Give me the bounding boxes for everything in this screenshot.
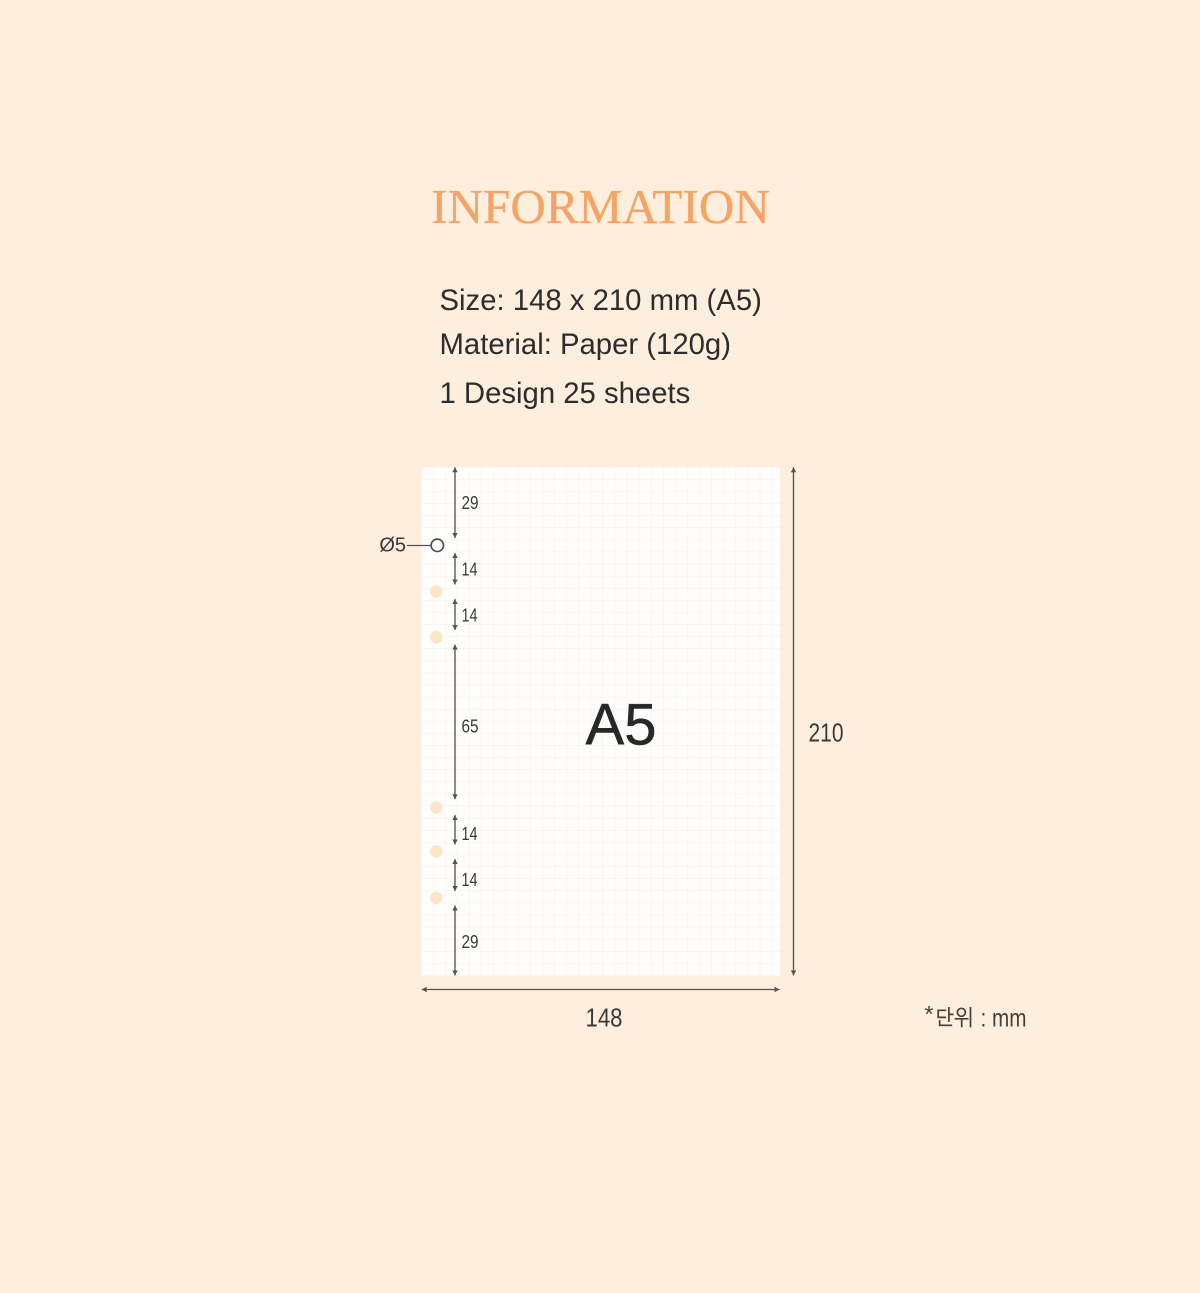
- svg-text:A5: A5: [586, 693, 657, 758]
- svg-text:Ø5: Ø5: [379, 535, 406, 557]
- svg-text:14: 14: [462, 559, 478, 579]
- svg-text:65: 65: [462, 717, 479, 737]
- svg-text:: mm: : mm: [981, 1005, 1027, 1033]
- svg-text:14: 14: [462, 606, 478, 626]
- svg-text:14: 14: [462, 870, 478, 890]
- svg-text:29: 29: [462, 932, 479, 952]
- svg-text:14: 14: [462, 824, 478, 844]
- svg-text:29: 29: [462, 493, 479, 513]
- svg-text:210: 210: [809, 720, 844, 748]
- svg-text:148: 148: [586, 1005, 623, 1033]
- svg-text:*: *: [925, 1001, 934, 1027]
